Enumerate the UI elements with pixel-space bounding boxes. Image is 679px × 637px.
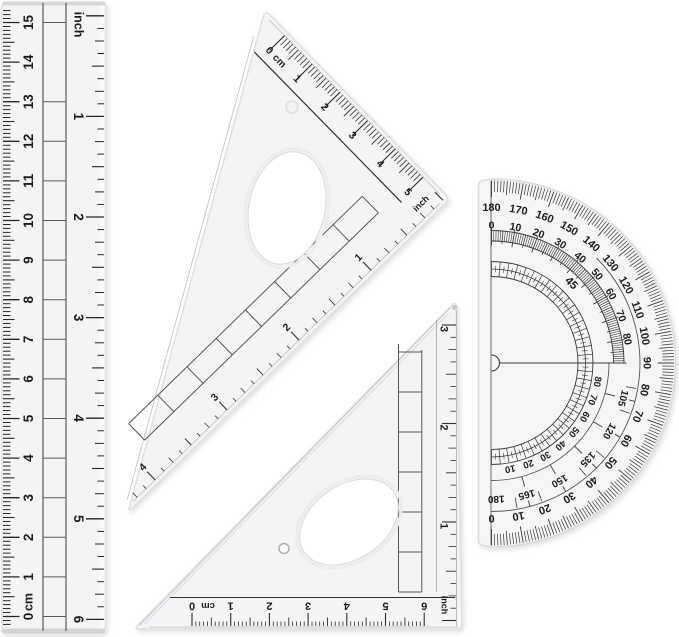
svg-text:inch: inch: [72, 12, 86, 38]
svg-text:80: 80: [637, 383, 651, 397]
svg-text:10: 10: [21, 213, 36, 228]
svg-text:8: 8: [21, 295, 36, 303]
svg-text:4: 4: [71, 414, 86, 422]
svg-text:inch: inch: [440, 596, 450, 615]
svg-text:2: 2: [71, 213, 86, 221]
svg-text:0: 0: [189, 600, 195, 612]
svg-text:13: 13: [21, 94, 36, 110]
svg-text:4: 4: [343, 600, 350, 612]
svg-text:6: 6: [21, 375, 36, 383]
svg-text:3: 3: [21, 493, 36, 501]
svg-text:5: 5: [21, 414, 36, 422]
svg-text:10: 10: [511, 509, 525, 523]
svg-text:0: 0: [21, 613, 36, 621]
svg-text:180: 180: [487, 493, 504, 505]
svg-text:5: 5: [382, 600, 388, 612]
svg-text:14: 14: [21, 54, 36, 70]
svg-text:cm: cm: [22, 593, 36, 611]
svg-text:10: 10: [504, 462, 516, 475]
svg-text:0: 0: [488, 512, 494, 524]
svg-text:80: 80: [591, 375, 604, 387]
svg-text:3: 3: [71, 314, 86, 322]
svg-text:6: 6: [71, 616, 86, 624]
svg-text:2: 2: [21, 534, 36, 542]
svg-text:3: 3: [438, 326, 450, 332]
svg-text:1: 1: [71, 113, 86, 121]
svg-text:1: 1: [21, 573, 36, 581]
svg-text:7: 7: [21, 336, 36, 344]
svg-text:11: 11: [21, 173, 36, 188]
svg-text:15: 15: [21, 15, 36, 31]
svg-text:90: 90: [641, 357, 653, 369]
svg-text:9: 9: [21, 256, 36, 264]
svg-text:3: 3: [305, 600, 311, 612]
svg-text:cm: cm: [201, 600, 215, 611]
svg-text:4: 4: [21, 454, 36, 462]
svg-text:2: 2: [438, 424, 450, 430]
svg-text:2: 2: [266, 600, 272, 612]
svg-text:1: 1: [438, 523, 450, 529]
svg-text:5: 5: [71, 515, 86, 523]
svg-text:1: 1: [228, 600, 234, 612]
svg-text:12: 12: [21, 134, 36, 149]
svg-text:180: 180: [482, 202, 500, 214]
svg-text:6: 6: [421, 600, 427, 612]
